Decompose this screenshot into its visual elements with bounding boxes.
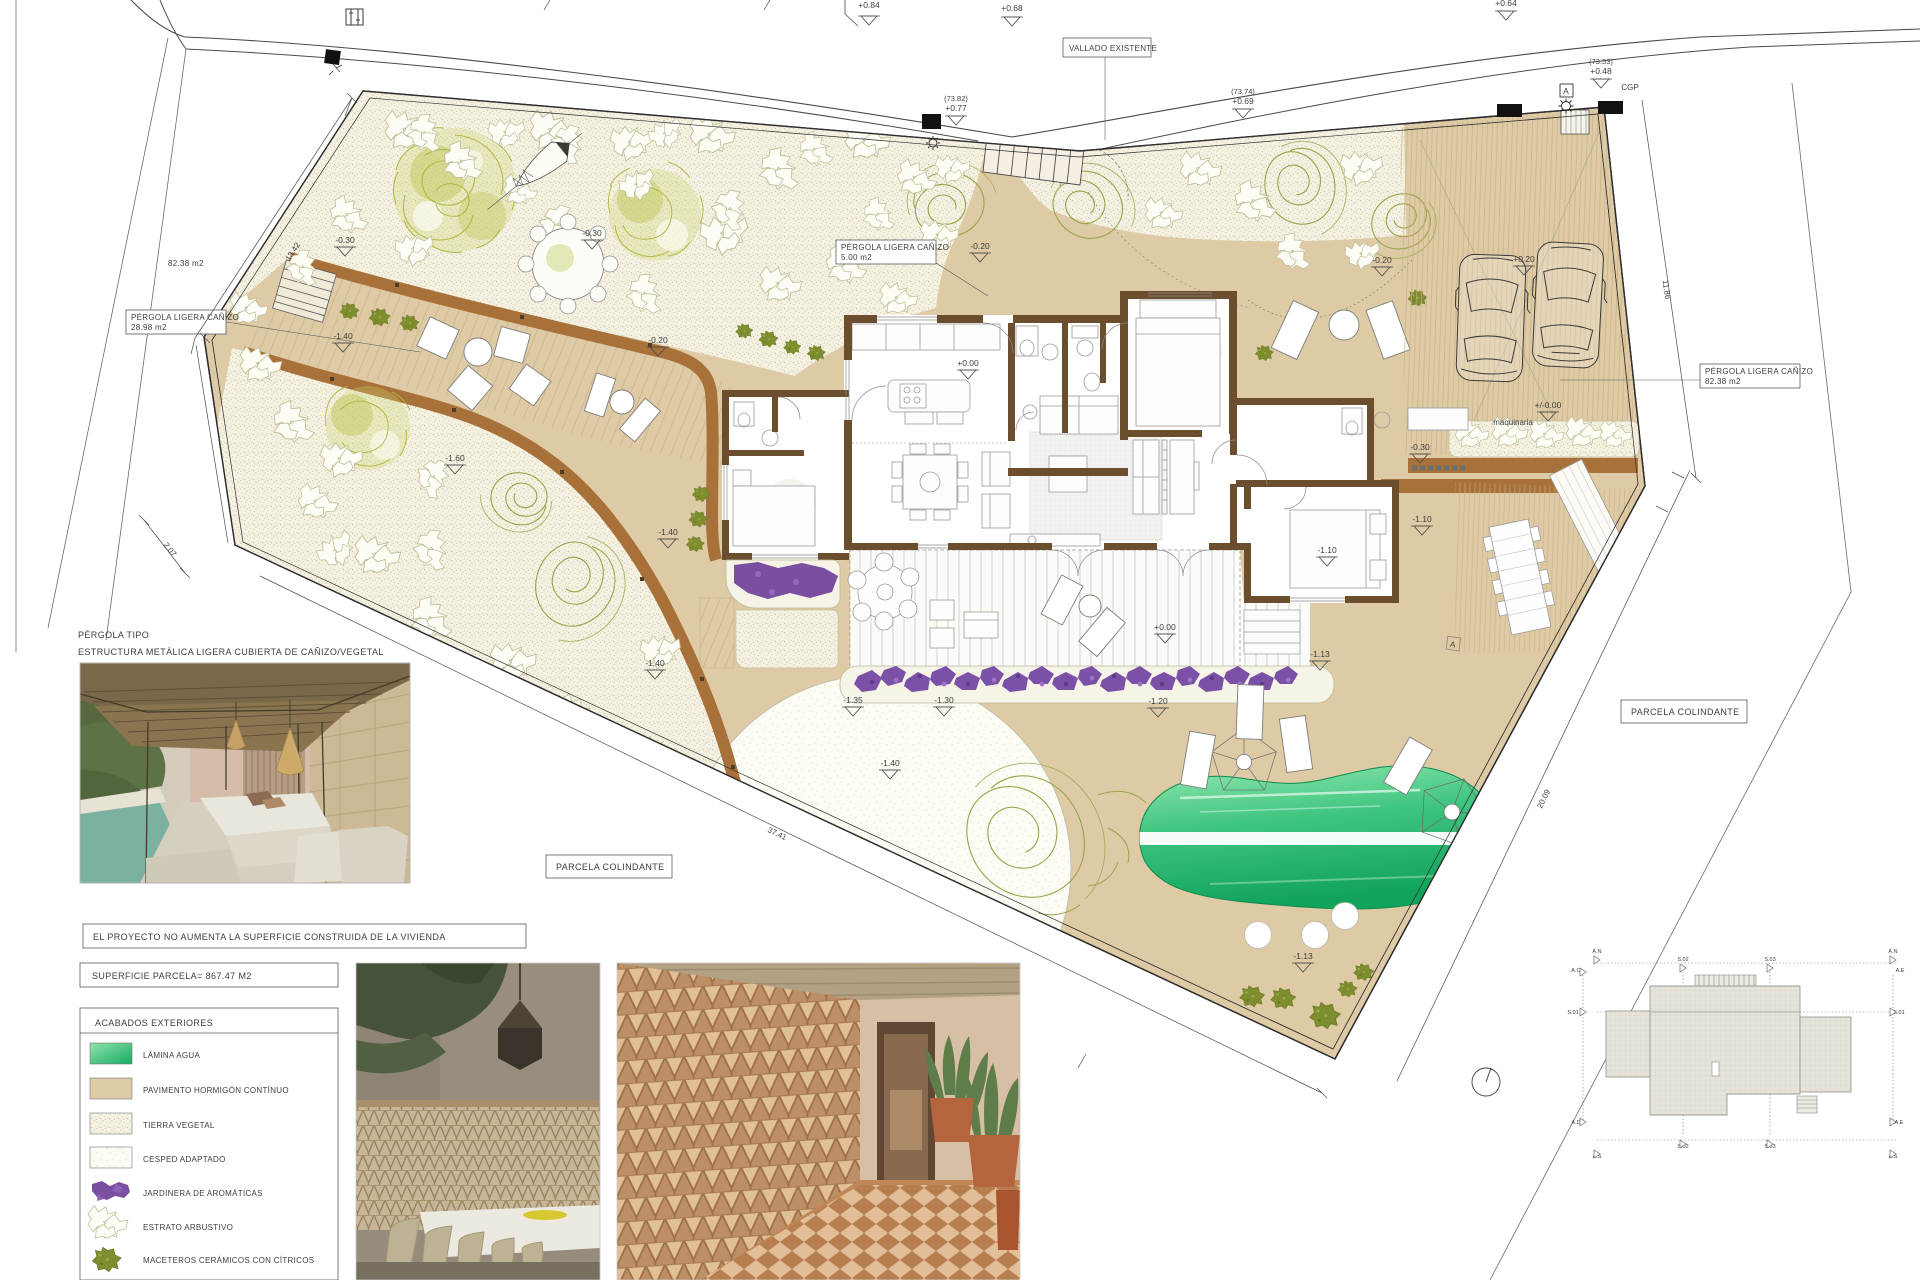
svg-text:PÉRGOLA TIPO: PÉRGOLA TIPO [78,630,149,640]
svg-text:TIERRA VEGETAL: TIERRA VEGETAL [143,1121,215,1130]
svg-text:+0.69: +0.69 [1232,96,1254,106]
svg-text:CESPED ADAPTADO: CESPED ADAPTADO [143,1155,226,1164]
svg-text:+0.20: +0.20 [1513,254,1535,264]
svg-text:A.N: A.N [1888,949,1897,955]
svg-text:-0.20: -0.20 [970,241,990,251]
svg-text:ESTRATO ARBUSTIVO: ESTRATO ARBUSTIVO [143,1223,233,1232]
svg-text:-1.40: -1.40 [333,331,353,341]
svg-text:-1.30: -1.30 [934,695,954,705]
svg-text:(73.53): (73.53) [1589,57,1613,66]
svg-text:+0.68: +0.68 [1001,3,1023,13]
svg-text:-1.60: -1.60 [445,453,465,463]
svg-text:+0.64: +0.64 [1495,0,1517,8]
svg-text:-0.30: -0.30 [335,235,355,245]
svg-text:+/-0.00: +/-0.00 [1535,400,1562,410]
svg-text:A.E: A.E [1896,968,1905,974]
svg-text:-1.40: -1.40 [880,758,900,768]
svg-text:+0.48: +0.48 [1590,66,1612,76]
svg-text:-1.13: -1.13 [1310,649,1330,659]
svg-text:+0.77: +0.77 [945,103,967,113]
svg-text:-1.40: -1.40 [658,527,678,537]
svg-text:PAVIMENTO HORMIGÓN CONTÍNUO: PAVIMENTO HORMIGÓN CONTÍNUO [143,1086,289,1095]
svg-text:S.03: S.03 [1764,957,1775,963]
svg-text:ESTRUCTURA METÁLICA LIGERA CUB: ESTRUCTURA METÁLICA LIGERA CUBIERTA DE C… [78,647,384,657]
svg-text:-1.10: -1.10 [1317,545,1337,555]
svg-text:maquinaria: maquinaria [1493,418,1533,427]
svg-text:-0.30: -0.30 [582,228,602,238]
svg-text:-0.20: -0.20 [1372,255,1392,265]
svg-text:A.N: A.N [1592,949,1601,955]
svg-text:PÉRGOLA LIGERA CAÑIZO: PÉRGOLA LIGERA CAÑIZO [841,243,949,252]
svg-text:+0.00: +0.00 [1154,622,1176,632]
svg-text:PARCELA COLINDANTE: PARCELA COLINDANTE [556,862,665,872]
svg-text:A.D: A.D [1571,1120,1580,1126]
svg-text:LÁMINA AGUA: LÁMINA AGUA [143,1051,200,1060]
svg-text:S.01: S.01 [1567,1010,1578,1016]
svg-text:A: A [1563,86,1569,96]
svg-text:5.00 m2: 5.00 m2 [841,253,872,262]
svg-text:PARCELA COLINDANTE: PARCELA COLINDANTE [1631,707,1740,717]
svg-text:+0.84: +0.84 [858,0,880,10]
svg-text:(73.74): (73.74) [1231,87,1255,96]
svg-text:JARDINERA DE AROMÁTICAS: JARDINERA DE AROMÁTICAS [143,1189,263,1198]
svg-text:CGP: CGP [1621,83,1638,92]
svg-text:-1.20: -1.20 [1148,696,1168,706]
svg-text:(73.82): (73.82) [944,94,968,103]
svg-text:82.38 m2: 82.38 m2 [1705,377,1741,386]
svg-text:ACABADOS EXTERIORES: ACABADOS EXTERIORES [95,1018,213,1028]
svg-text:EL PROYECTO NO AUMENTA LA SUPE: EL PROYECTO NO AUMENTA LA SUPERFICIE CON… [93,932,446,942]
svg-text:+0.00: +0.00 [957,358,979,368]
svg-text:MACETEROS CERÁMICOS CON CÍTRIC: MACETEROS CERÁMICOS CON CÍTRICOS [143,1256,314,1265]
svg-text:-1.40: -1.40 [645,658,665,668]
svg-text:-1.10: -1.10 [1412,514,1432,524]
svg-text:VALLADO EXISTENTE: VALLADO EXISTENTE [1069,44,1157,53]
svg-text:PÉRGOLA LIGERA CAÑIZO: PÉRGOLA LIGERA CAÑIZO [131,313,239,322]
svg-text:-1.13: -1.13 [1293,951,1313,961]
svg-text:S.02: S.02 [1677,957,1688,963]
svg-text:28.98 m2: 28.98 m2 [131,323,167,332]
svg-text:-0.30: -0.30 [1410,442,1430,452]
svg-text:PÉRGOLA LIGERA CAÑIZO: PÉRGOLA LIGERA CAÑIZO [1705,367,1813,376]
svg-text:SUPERFICIE PARCELA= 867.47 M2: SUPERFICIE PARCELA= 867.47 M2 [92,971,252,981]
svg-text:A.E: A.E [1895,1120,1904,1126]
svg-text:-1.35: -1.35 [843,695,863,705]
svg-text:82.38 m2: 82.38 m2 [168,259,204,268]
svg-text:-0.20: -0.20 [648,335,668,345]
